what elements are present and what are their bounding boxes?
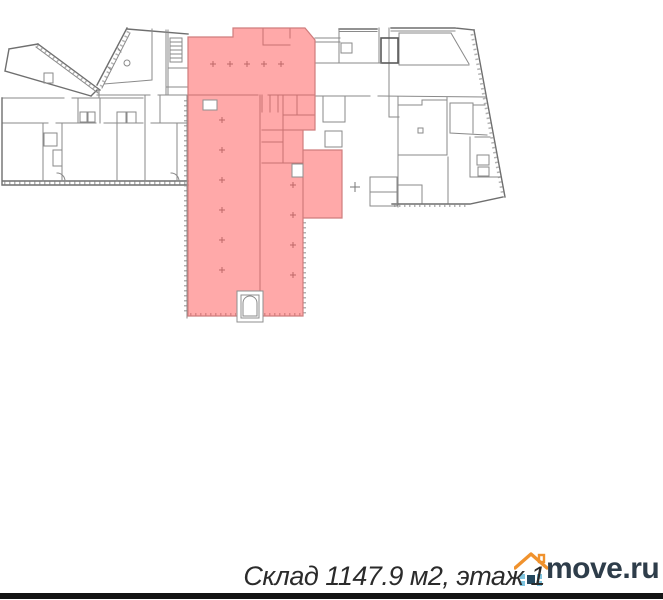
floor-plan — [0, 0, 663, 600]
right-wing-walls — [315, 28, 505, 207]
stairs-symbol — [170, 38, 182, 62]
elevator-shaft — [237, 291, 263, 322]
caption: Склад 1147.9 м2, этаж 1 — [243, 561, 545, 591]
left-wing-walls — [2, 28, 188, 318]
bottom-bar — [0, 593, 663, 599]
screenshot-root: Склад 1147.9 м2, этаж 1 move.ru — [0, 0, 663, 600]
highlighted-area — [188, 28, 342, 316]
watermark-text: move.ru — [546, 552, 659, 586]
